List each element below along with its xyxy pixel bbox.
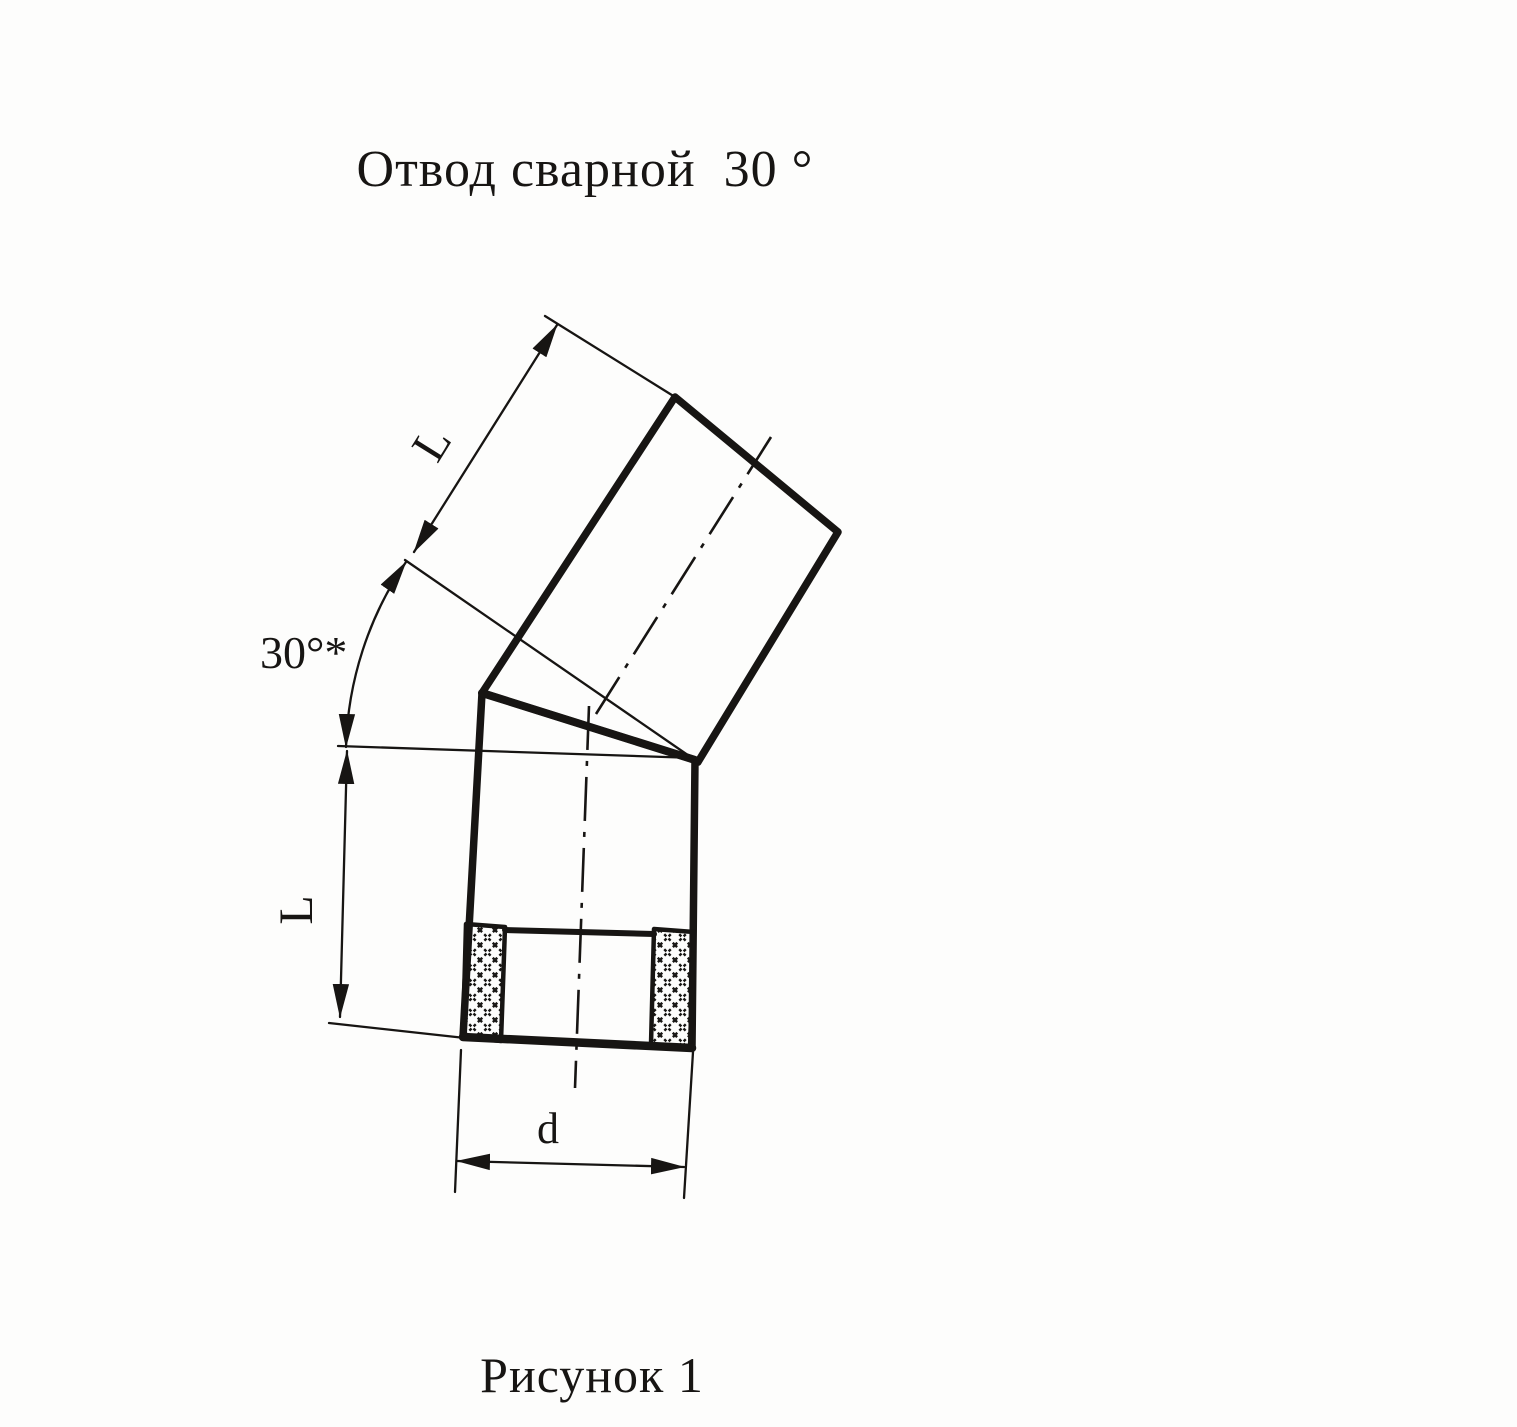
drawing-title: Отвод сварной 30 ° [357,141,814,198]
figure-caption: Рисунок 1 [480,1347,704,1403]
dimension-line-d [457,1161,684,1167]
pipe-wall-section-left [463,924,505,1041]
extension-line-d-right [684,1052,693,1198]
extension-line-d-left [455,1050,461,1192]
pipe-wall-section-right [651,929,694,1048]
scanned-drawing-page: Отвод сварной 30 ° Рисунок 1 [0,0,1517,1427]
technical-drawing-canvas: Отвод сварной 30 ° Рисунок 1 [0,0,1517,1427]
lower-length-label: L [270,895,323,924]
pipe-elbow [463,397,838,1048]
angle-value-label: 30°* [260,627,347,678]
extension-line-upper-face [545,316,675,397]
upper-length-label: L [402,417,462,470]
angle-dimension-arc [346,562,406,747]
dimension-line-lower-L [340,751,347,1017]
extension-line-bottom-corner [329,1023,465,1038]
diameter-label: d [537,1104,559,1153]
